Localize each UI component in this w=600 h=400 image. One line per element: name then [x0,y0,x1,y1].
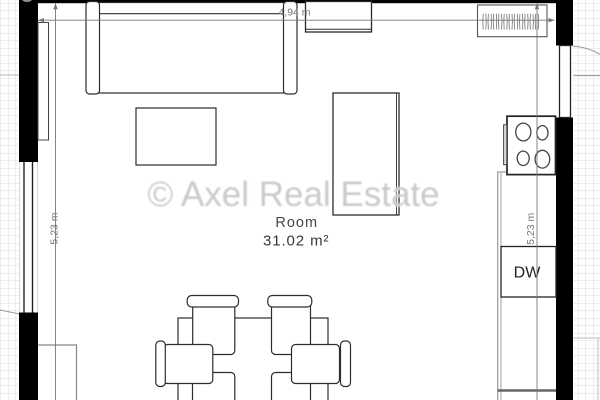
svg-text:5,23 m: 5,23 m [49,212,61,244]
svg-text:4,94 m: 4,94 m [278,7,310,19]
svg-text:31.02 m²: 31.02 m² [263,233,329,250]
svg-text:© Axel Real Estate: © Axel Real Estate [147,175,439,214]
svg-text:5,23 m: 5,23 m [525,213,537,245]
svg-text:Room: Room [275,215,318,231]
